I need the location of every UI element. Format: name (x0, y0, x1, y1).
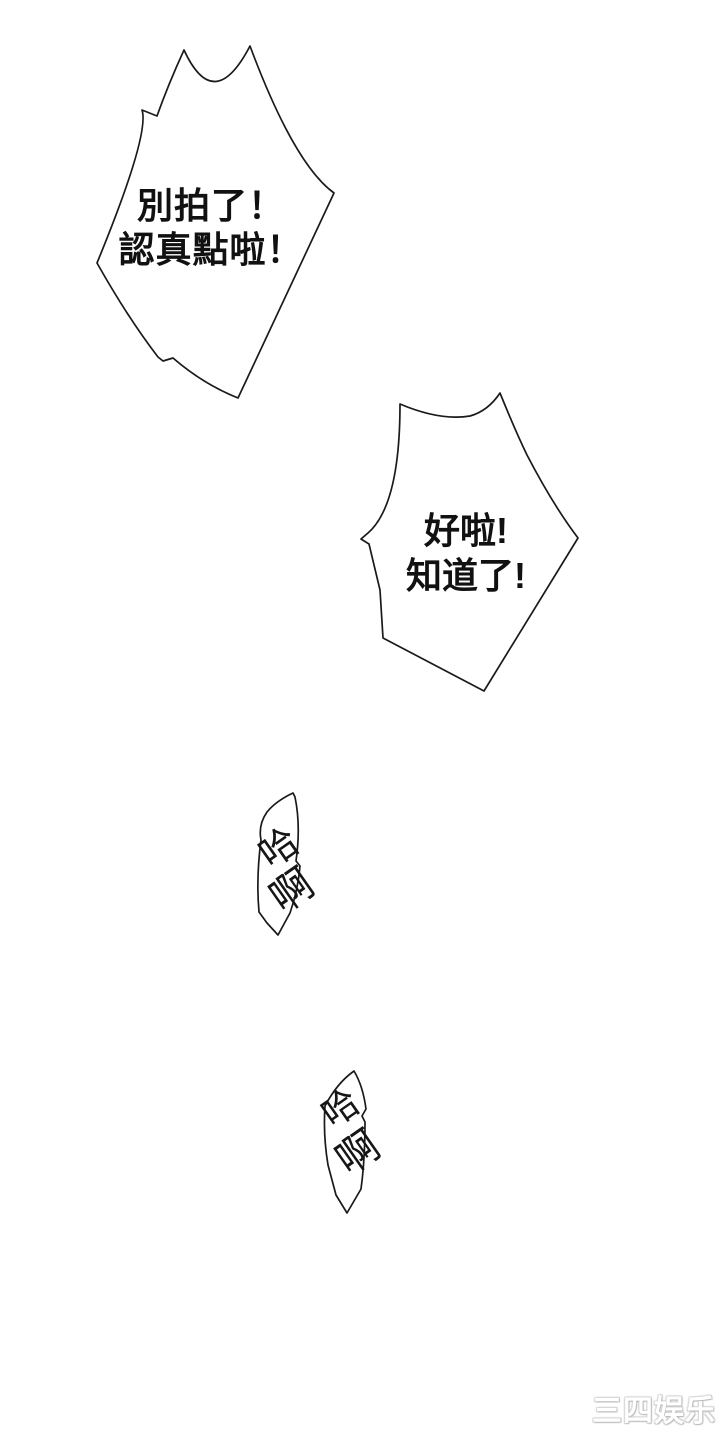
shout-bubble-line-1: 別拍了！ (105, 184, 317, 228)
watermark: 三四娱乐 (592, 1386, 716, 1430)
shout-bubble-text: 別拍了！ 認真點啦！ (105, 184, 317, 272)
reply-bubble-text: 好啦! 知道了! (386, 508, 546, 598)
comic-page: 別拍了！ 認真點啦！ 好啦! 知道了! 哈 啊 哈 啊 三四娱乐 (0, 0, 720, 1440)
shout-bubble-line-2: 認真點啦！ (105, 228, 317, 272)
reply-bubble-line-1: 好啦! (386, 508, 546, 553)
reply-bubble-line-2: 知道了! (386, 553, 546, 598)
